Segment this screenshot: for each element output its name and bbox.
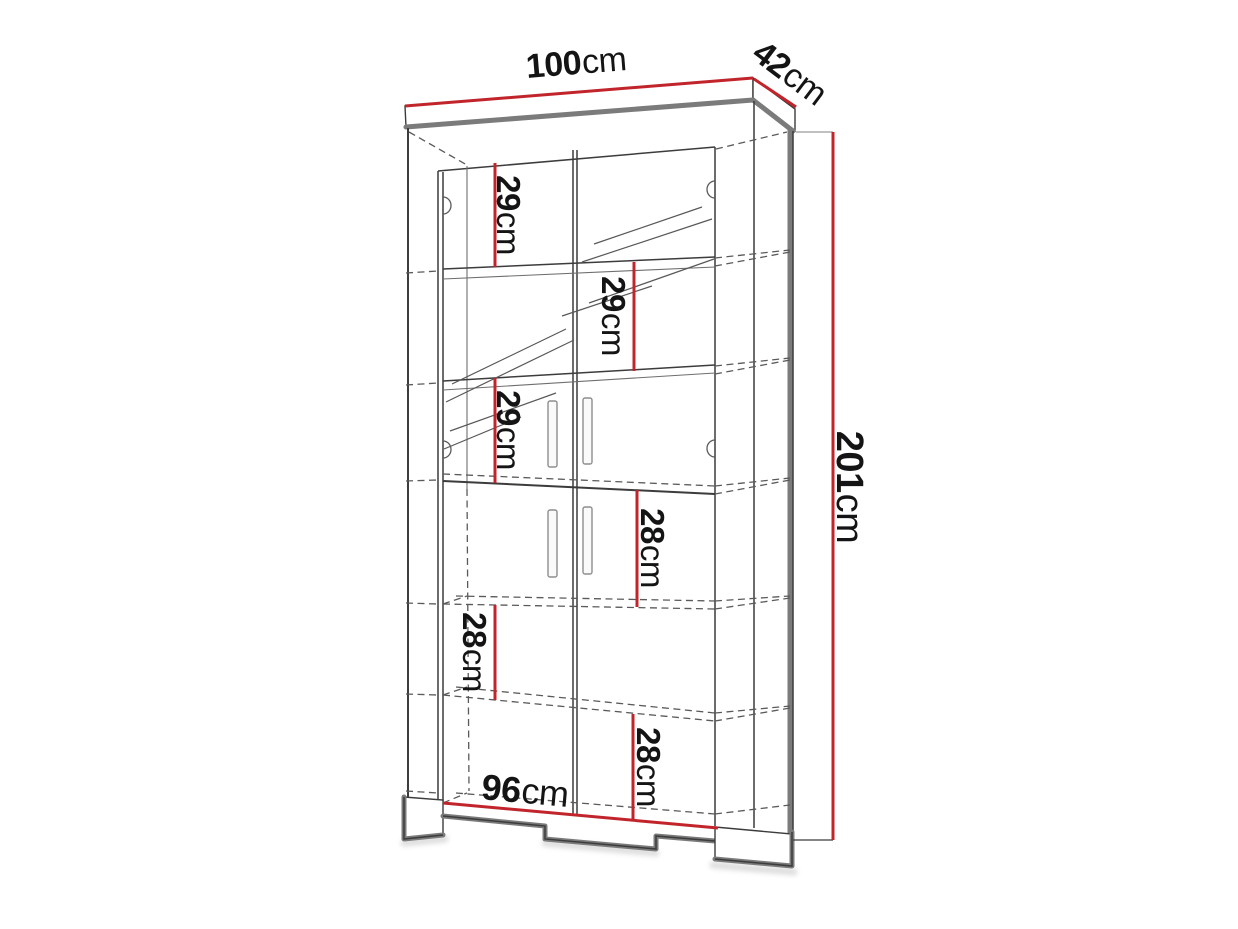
dashed-edge bbox=[406, 694, 438, 695]
dim-unit: cm bbox=[595, 313, 632, 356]
hinge-cup-icon bbox=[443, 197, 451, 214]
furniture-dimension-diagram: 100cm 42cm 201cm 96cm 29cm 29cm 29cm 28c… bbox=[0, 0, 1238, 929]
dim-label-height: 201cm bbox=[828, 431, 870, 544]
dashed-depth-diagonal bbox=[443, 596, 467, 604]
cabinet-drawing: 100cm 42cm 201cm 96cm 29cm 29cm 29cm 28c… bbox=[0, 0, 1238, 929]
dashed-side-edge bbox=[715, 358, 790, 366]
dim-label-base-width: 96cm bbox=[480, 766, 570, 815]
hinge-cup-icon bbox=[707, 440, 715, 457]
door-handle bbox=[548, 510, 557, 577]
dim-label-shelf-1: 29cm bbox=[490, 175, 527, 255]
dim-value: 96 bbox=[480, 766, 523, 810]
shelf-line bbox=[443, 365, 715, 381]
dim-unit: cm bbox=[490, 212, 527, 255]
hinge-cup-icon bbox=[707, 181, 715, 198]
dashed-side-edge bbox=[715, 706, 790, 713]
hidden-edges bbox=[406, 132, 790, 814]
door-handle bbox=[548, 401, 557, 467]
reflection-line bbox=[452, 329, 566, 384]
dim-label-shelf-4: 28cm bbox=[634, 508, 671, 588]
dashed-depth-diagonal bbox=[443, 793, 467, 803]
hinge-cup-icon bbox=[443, 441, 451, 458]
dashed-shelf-back-edge bbox=[456, 596, 715, 601]
dim-value: 29 bbox=[490, 390, 527, 426]
dashed-side-edge bbox=[715, 250, 790, 258]
dashed-top-left-diagonal bbox=[409, 132, 467, 165]
dim-unit: cm bbox=[634, 545, 671, 588]
dim-value: 29 bbox=[490, 175, 527, 211]
dim-unit: cm bbox=[456, 649, 493, 692]
shelf-thickness-line bbox=[443, 373, 715, 390]
dim-label-shelf-3: 29cm bbox=[490, 390, 527, 470]
dashed-edge bbox=[406, 480, 438, 481]
dashed-shelf-front-edge bbox=[443, 604, 715, 609]
dim-label-shelf-5: 28cm bbox=[456, 612, 493, 692]
dim-value: 28 bbox=[634, 508, 671, 544]
dim-unit: cm bbox=[520, 770, 571, 815]
dashed-edge bbox=[406, 603, 438, 604]
dashed-shelf-front-edge bbox=[443, 695, 715, 721]
dim-unit: cm bbox=[630, 764, 667, 807]
dim-value: 29 bbox=[595, 276, 632, 312]
dim-value: 100 bbox=[524, 44, 582, 86]
dashed-side-edge bbox=[715, 598, 790, 609]
dashed-side-edge bbox=[715, 478, 790, 486]
left-leg bbox=[404, 797, 443, 839]
base-rail-shade bbox=[443, 816, 715, 849]
shelf-line bbox=[443, 257, 715, 269]
hinge-marks bbox=[443, 181, 715, 458]
dim-value: 28 bbox=[630, 727, 667, 763]
dim-value: 201 bbox=[828, 431, 870, 493]
dashed-side-edge bbox=[715, 805, 790, 814]
door-handle bbox=[583, 507, 592, 574]
dim-unit: cm bbox=[828, 494, 870, 544]
glass-reflections bbox=[444, 207, 714, 449]
dashed-shelf-back-edge bbox=[443, 474, 715, 486]
dim-value: 28 bbox=[456, 612, 493, 648]
dim-unit: cm bbox=[581, 40, 628, 81]
reflection-line bbox=[594, 207, 702, 244]
dimension-labels: 100cm 42cm 201cm 96cm 29cm 29cm 29cm 28c… bbox=[456, 33, 870, 815]
dashed-edge bbox=[406, 383, 438, 385]
top-cap bbox=[405, 78, 795, 131]
dashed-edge bbox=[406, 791, 438, 793]
door-handle bbox=[583, 398, 592, 464]
mid-rail-line bbox=[443, 481, 715, 494]
dim-unit: cm bbox=[490, 427, 527, 470]
dashed-edge bbox=[406, 271, 438, 273]
base-and-legs bbox=[404, 797, 792, 866]
dim-label-width: 100cm bbox=[524, 40, 627, 86]
dim-label-shelf-6: 28cm bbox=[630, 727, 667, 807]
dashed-top-right-diagonal bbox=[716, 132, 787, 149]
dim-label-shelf-2: 29cm bbox=[595, 276, 632, 356]
shelf-lines bbox=[443, 257, 715, 494]
